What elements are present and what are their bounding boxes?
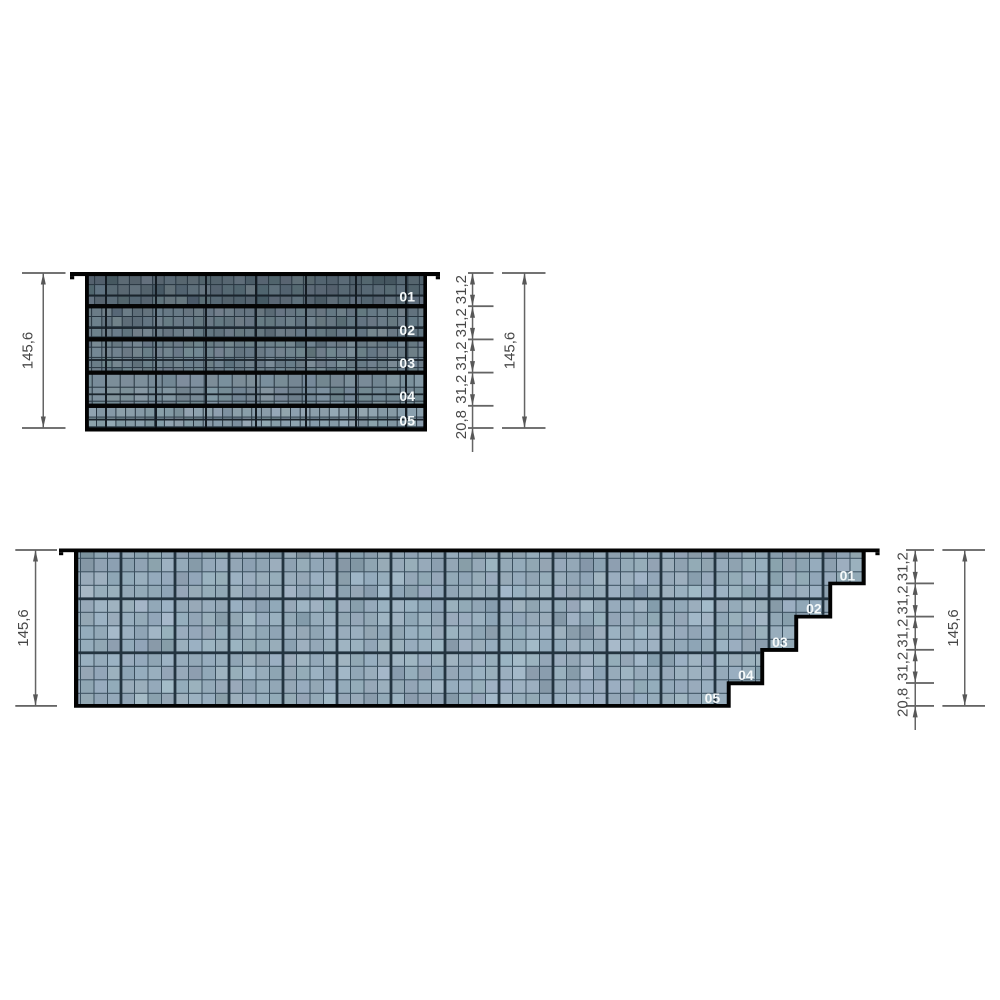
svg-text:20,8: 20,8 [895, 688, 912, 717]
svg-text:31,2: 31,2 [895, 652, 912, 681]
svg-text:31,2: 31,2 [453, 341, 470, 370]
svg-text:04: 04 [738, 667, 754, 683]
svg-text:31,2: 31,2 [895, 619, 912, 648]
svg-text:03: 03 [399, 355, 415, 371]
svg-text:145,6: 145,6 [20, 332, 37, 370]
svg-text:31,2: 31,2 [895, 552, 912, 581]
svg-text:145,6: 145,6 [945, 609, 962, 647]
svg-text:01: 01 [840, 567, 856, 583]
svg-text:01: 01 [399, 289, 415, 305]
svg-text:04: 04 [399, 388, 415, 404]
svg-text:31,2: 31,2 [453, 308, 470, 337]
svg-text:20,8: 20,8 [453, 410, 470, 439]
svg-text:05: 05 [705, 690, 721, 706]
svg-text:03: 03 [772, 634, 788, 650]
svg-text:31,2: 31,2 [453, 375, 470, 404]
svg-text:02: 02 [806, 601, 822, 617]
svg-text:05: 05 [399, 412, 415, 428]
svg-text:02: 02 [399, 322, 415, 338]
svg-text:31,2: 31,2 [895, 585, 912, 614]
svg-text:145,6: 145,6 [502, 332, 519, 370]
svg-text:145,6: 145,6 [15, 609, 32, 647]
svg-text:31,2: 31,2 [453, 275, 470, 304]
